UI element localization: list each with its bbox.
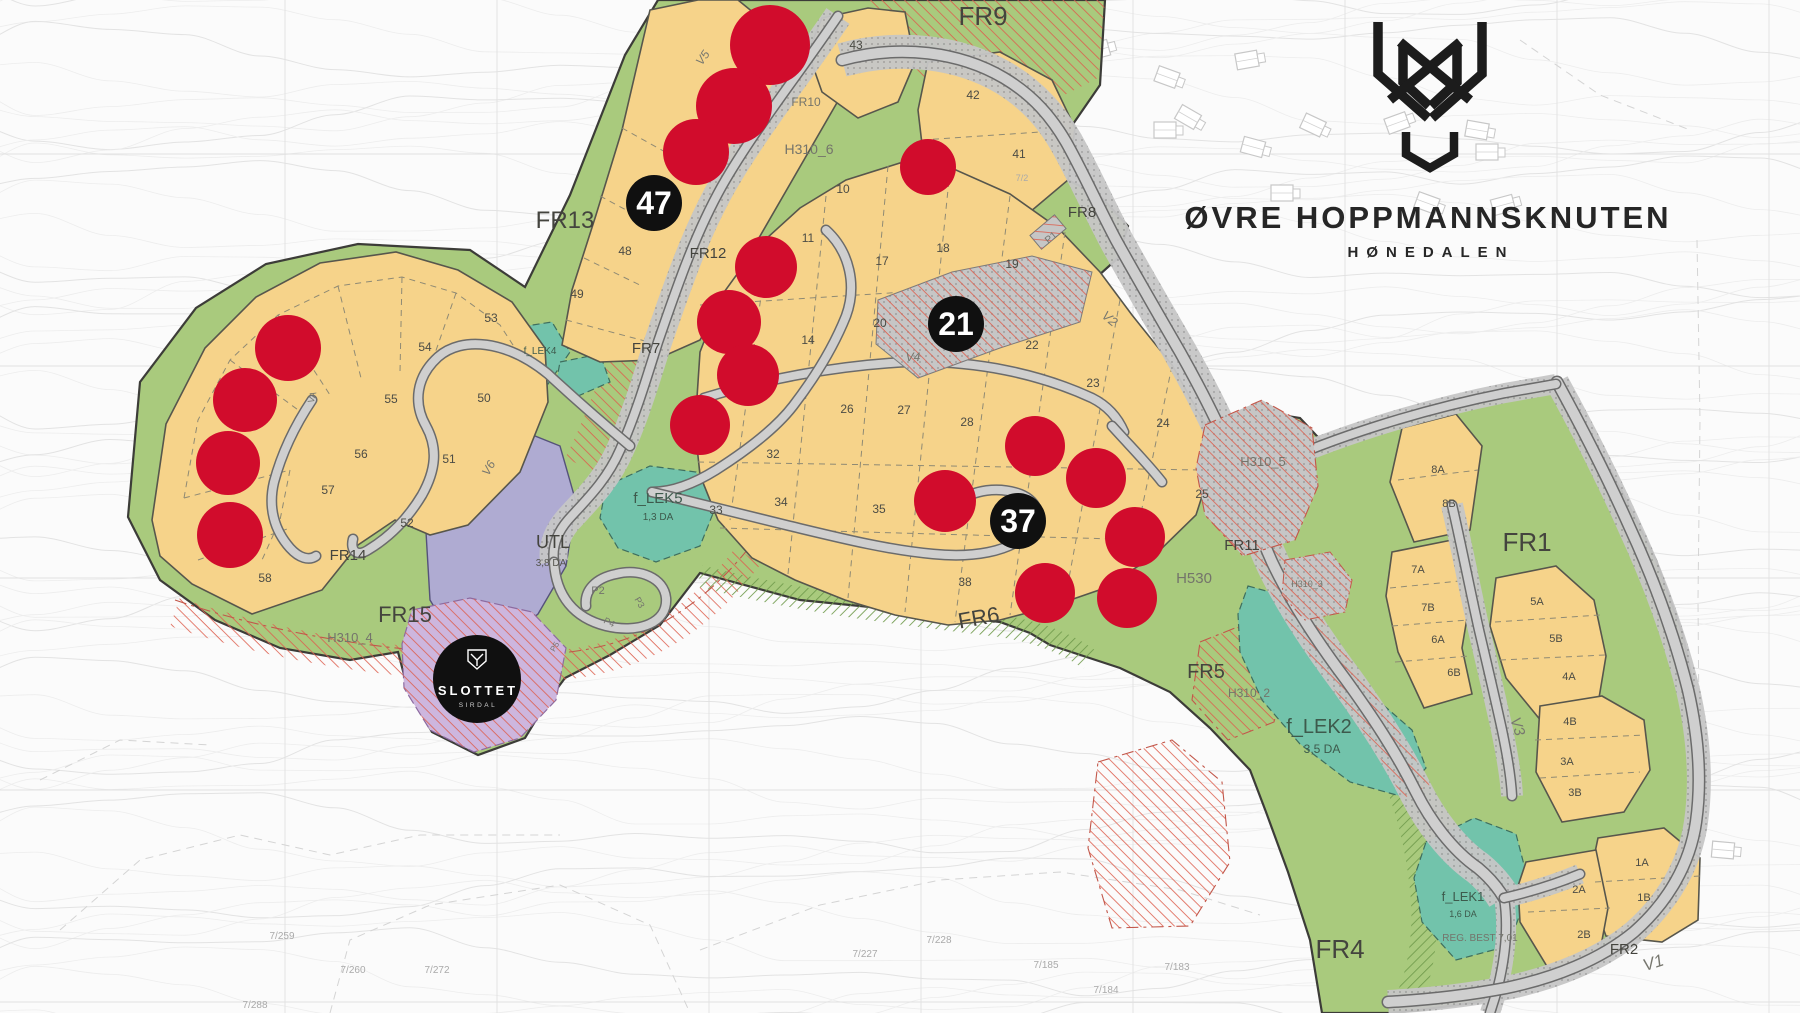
map-label: 52 (400, 516, 414, 530)
map-label: 28 (960, 415, 974, 429)
map-label: UTL (536, 532, 570, 552)
map-label: 27 (897, 403, 911, 417)
map-label: 54 (418, 340, 432, 354)
map-label: f_LEK5 (633, 490, 682, 507)
map-label: 7/260 (340, 965, 365, 976)
map-label: H310_6 (784, 141, 833, 157)
map-label: 51 (442, 452, 456, 466)
map-label: 48 (618, 244, 632, 258)
map-label: f_LEK4 (524, 346, 557, 357)
slottet-badge-name: SLOTTET (438, 683, 518, 698)
map-label: H530 (1176, 570, 1212, 587)
map-label: FR4 (1315, 934, 1364, 964)
map-label: 7/227 (852, 949, 877, 960)
map-label: 3,5 DA (1304, 742, 1341, 756)
map-label: 35 (872, 502, 886, 516)
map-label: FR10 (791, 95, 821, 109)
map-label: H310_5 (1240, 454, 1286, 469)
map-label: 1A (1635, 857, 1649, 869)
sold-marker[interactable] (717, 344, 779, 406)
sold-marker[interactable] (1005, 416, 1065, 476)
map-label: 3A (1560, 756, 1574, 768)
map-label: H310_4 (327, 630, 373, 645)
map-label: FR5 (1187, 661, 1225, 683)
map-label: 2B (1577, 929, 1590, 941)
map-label: REG. BEST 7,01 (1442, 933, 1518, 944)
sold-marker[interactable] (213, 368, 277, 432)
sold-marker[interactable] (900, 139, 956, 195)
map-label: FR2 (1610, 941, 1638, 958)
sold-marker[interactable] (735, 236, 797, 298)
map-label: 4B (1563, 716, 1576, 728)
map-label: 14 (801, 333, 815, 347)
map-label: 18 (936, 241, 950, 255)
map-label: 23 (1086, 376, 1100, 390)
map-label: 33 (709, 503, 723, 517)
map-label: FR9 (958, 1, 1007, 31)
sold-marker[interactable] (1105, 507, 1165, 567)
map-label: 7/259 (269, 931, 294, 942)
sold-marker[interactable] (663, 119, 729, 185)
sold-marker[interactable] (914, 470, 976, 532)
map-label: 42 (966, 88, 980, 102)
map-label: 53 (484, 311, 498, 325)
map-label: 7/272 (424, 965, 449, 976)
map-label: 7/2 (1016, 173, 1029, 183)
map-label: 7/184 (1093, 985, 1118, 996)
site-plan-map: 472137FR13FR9FR12FR10FR8FR7FR14FR15FR6FR… (0, 0, 1800, 1013)
map-label: 6B (1447, 667, 1460, 679)
map-label: 38 (958, 575, 972, 589)
unit-count-label: 21 (938, 306, 974, 342)
unit-count-label: 47 (636, 185, 672, 221)
map-label: 10 (836, 182, 850, 196)
map-label: 43 (849, 38, 863, 52)
map-label: 20 (873, 316, 887, 330)
map-label: P2 (591, 585, 604, 597)
sold-marker[interactable] (196, 431, 260, 495)
map-label: 6A (1431, 634, 1445, 646)
map-label: f_LEK1 (1442, 889, 1485, 904)
map-label: 5A (1530, 596, 1544, 608)
map-label: 7/288 (242, 1000, 267, 1011)
map-label: 8A (1431, 464, 1445, 476)
map-label: 17 (875, 254, 889, 268)
unit-count-badge[interactable]: 47 (626, 175, 682, 231)
map-label: FR8 (1068, 204, 1096, 221)
map-label: 24 (1156, 416, 1170, 430)
sold-marker[interactable] (197, 502, 263, 568)
map-label: FR15 (378, 602, 432, 627)
map-label: 32 (766, 447, 780, 461)
map-label: 11 (802, 231, 815, 245)
sold-marker[interactable] (255, 315, 321, 381)
unit-count-label: 37 (1000, 503, 1036, 539)
map-label: 1B (1637, 892, 1650, 904)
map-label: H310_2 (1228, 686, 1270, 700)
map-label: FR14 (330, 547, 367, 564)
slottet-badge-circle (433, 635, 521, 723)
slottet-badge-sub: SIRDAL (459, 702, 497, 709)
unit-count-badge[interactable]: 37 (990, 493, 1046, 549)
map-label: 1,3 DA (643, 512, 674, 523)
map-label: 2A (1572, 884, 1586, 896)
map-label: 22 (1025, 338, 1039, 352)
map-label: 7/183 (1164, 962, 1189, 973)
map-label: 7/228 (926, 935, 951, 946)
unit-count-badge[interactable]: 21 (928, 296, 984, 352)
map-label: 8B (1442, 498, 1455, 510)
map-label: 55 (384, 392, 398, 406)
sold-marker[interactable] (1097, 568, 1157, 628)
map-label: 4A (1562, 671, 1576, 683)
map-label: 56 (354, 447, 368, 461)
map-label: 34 (774, 495, 788, 509)
map-label: f_LEK2 (1286, 716, 1352, 738)
slottet-sirdal-badge: SLOTTET SIRDAL (433, 635, 521, 723)
map-label: 3,8 DA (536, 558, 567, 569)
map-label: 50 (477, 391, 491, 405)
map-title: ØVRE HOPPMANNSKNUTEN (1184, 200, 1671, 235)
map-label: FR11 (1224, 537, 1260, 554)
sold-marker[interactable] (670, 395, 730, 455)
map-label: 26 (840, 402, 854, 416)
map-label: H310_3 (1291, 579, 1323, 589)
map-label: 19 (1005, 257, 1019, 271)
map-label: 41 (1012, 147, 1026, 161)
map-label: 7B (1421, 602, 1434, 614)
map-label: 3B (1568, 787, 1581, 799)
map-label: FR1 (1502, 527, 1551, 557)
map-label: 1,6 DA (1449, 909, 1477, 919)
map-label: 49 (570, 287, 584, 301)
map-label: FR7 (632, 340, 660, 357)
sold-marker[interactable] (1066, 448, 1126, 508)
map-label: FR13 (536, 207, 595, 234)
sold-marker[interactable] (1015, 563, 1075, 623)
map-label: V4 (906, 350, 921, 364)
map-label: 58 (258, 571, 272, 585)
map-label: 25 (1195, 487, 1209, 501)
map-label: 7/185 (1033, 960, 1058, 971)
map-label: 7A (1411, 564, 1425, 576)
map-subtitle: HØNEDALEN (1347, 244, 1514, 261)
map-label: FR12 (690, 245, 727, 262)
map-label: 5B (1549, 633, 1562, 645)
map-label: 57 (321, 483, 335, 497)
